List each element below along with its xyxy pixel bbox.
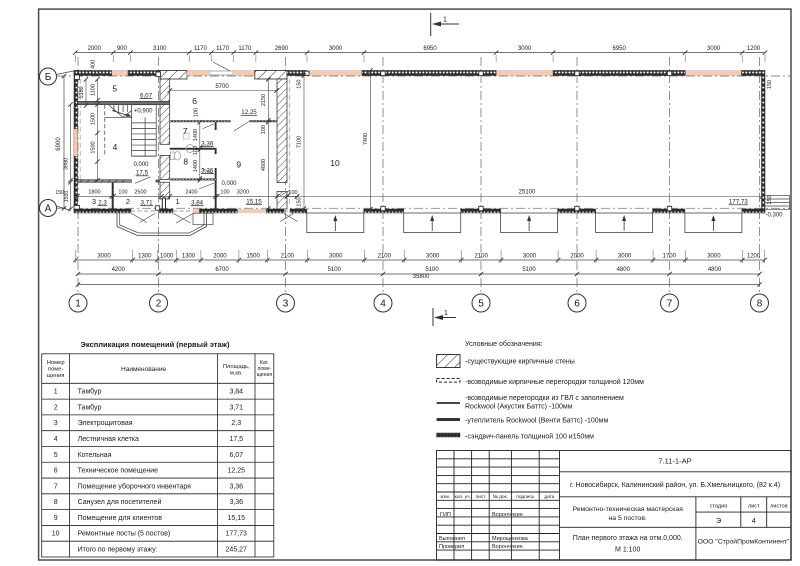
svg-text:Ремонтные посты (5 постов): Ремонтные посты (5 постов) xyxy=(78,531,171,538)
svg-text:1400: 1400 xyxy=(193,129,199,141)
svg-text:-утеплитель Rockwool (Венти Ба: -утеплитель Rockwool (Венти Баттс) -100м… xyxy=(465,418,608,425)
svg-text:Условные обозначения:: Условные обозначения: xyxy=(465,340,543,348)
svg-text:6: 6 xyxy=(54,468,58,475)
svg-text:2150: 2150 xyxy=(261,94,267,106)
svg-text:3000: 3000 xyxy=(523,253,537,259)
svg-text:3000: 3000 xyxy=(707,46,721,52)
svg-text:1400: 1400 xyxy=(193,160,199,172)
svg-text:Итого по первому этажу:: Итого по первому этажу: xyxy=(78,547,158,554)
svg-text:100: 100 xyxy=(220,190,229,196)
svg-text:8: 8 xyxy=(54,499,58,506)
svg-text:2000: 2000 xyxy=(570,253,584,259)
svg-text:5100: 5100 xyxy=(328,267,342,273)
svg-text:2500: 2500 xyxy=(134,190,146,196)
svg-text:1500: 1500 xyxy=(91,141,97,153)
svg-text:Ворончихин: Ворончихин xyxy=(492,544,523,550)
svg-text:Б: Б xyxy=(45,72,52,83)
svg-text:1200: 1200 xyxy=(747,46,761,52)
svg-text:1500: 1500 xyxy=(91,113,97,125)
svg-text:5: 5 xyxy=(478,299,484,310)
svg-text:1500: 1500 xyxy=(64,191,70,203)
svg-text:150: 150 xyxy=(297,80,303,89)
svg-text:подпись: подпись xyxy=(516,495,535,500)
svg-text:6950: 6950 xyxy=(423,46,437,52)
svg-text:ГИП: ГИП xyxy=(440,512,451,518)
svg-text:3000: 3000 xyxy=(518,46,532,52)
svg-text:9: 9 xyxy=(54,515,58,522)
svg-text:2,3: 2,3 xyxy=(231,420,241,427)
svg-text:900: 900 xyxy=(117,46,128,52)
svg-text:1200: 1200 xyxy=(747,253,761,259)
svg-text:7100: 7100 xyxy=(297,136,303,148)
svg-text:2100: 2100 xyxy=(281,253,295,259)
svg-text:Ворончихин: Ворончихин xyxy=(492,512,523,518)
svg-text:Котельная: Котельная xyxy=(78,452,112,459)
svg-text:7400: 7400 xyxy=(363,133,369,145)
svg-text:2: 2 xyxy=(126,197,130,206)
svg-text:7.11-1-АР: 7.11-1-АР xyxy=(658,457,691,466)
svg-text:5100: 5100 xyxy=(522,267,536,273)
svg-text:4: 4 xyxy=(113,142,118,152)
svg-text:7: 7 xyxy=(667,299,673,310)
svg-text:35800: 35800 xyxy=(413,274,430,280)
svg-text:3: 3 xyxy=(92,197,96,206)
svg-text:3200: 3200 xyxy=(237,190,249,196)
svg-text:2100: 2100 xyxy=(474,253,488,259)
svg-text:2: 2 xyxy=(54,404,58,411)
svg-text:Помещение уборочного инвентаря: Помещение уборочного инвентаря xyxy=(78,482,192,490)
svg-text:кол. уч.: кол. уч. xyxy=(455,495,471,500)
svg-text:-возводимые перегородки из ГВЛ: -возводимые перегородки из ГВЛ с заполне… xyxy=(465,395,624,402)
svg-text:100: 100 xyxy=(288,190,297,196)
svg-text:1170: 1170 xyxy=(194,46,208,52)
svg-text:1170: 1170 xyxy=(238,46,252,52)
svg-text:-0,300: -0,300 xyxy=(765,213,783,219)
svg-text:150: 150 xyxy=(767,80,773,89)
svg-text:3,36: 3,36 xyxy=(229,483,243,490)
svg-text:Наименование: Наименование xyxy=(121,366,166,373)
svg-text:3000: 3000 xyxy=(329,253,343,259)
svg-text:150: 150 xyxy=(55,190,64,196)
svg-text:г. Новосибирск, Калининский ра: г. Новосибирск, Калининский район, ул. Б… xyxy=(570,481,780,489)
svg-text:Тамбур: Тамбур xyxy=(78,388,102,396)
svg-text:150: 150 xyxy=(297,197,303,206)
svg-text:3000: 3000 xyxy=(707,253,721,259)
svg-text:1700: 1700 xyxy=(663,253,677,259)
svg-text:17,5: 17,5 xyxy=(229,436,243,443)
svg-text:лист: лист xyxy=(475,495,486,500)
svg-text:Электрощитовая: Электрощитовая xyxy=(78,420,133,427)
svg-text:-возводимые кирпичные перегоро: -возводимые кирпичные перегородки толщин… xyxy=(465,378,644,386)
svg-text:щения: щения xyxy=(47,373,65,379)
svg-text:поме-: поме- xyxy=(48,367,64,373)
svg-text:3: 3 xyxy=(283,299,289,310)
svg-text:Э: Э xyxy=(716,516,722,525)
svg-text:Мирощенкова: Мирощенкова xyxy=(492,536,529,542)
svg-text:4: 4 xyxy=(54,436,58,443)
svg-text:3,84: 3,84 xyxy=(229,389,243,396)
svg-text:лист: лист xyxy=(748,504,760,510)
svg-text:100: 100 xyxy=(261,125,267,134)
svg-text:6: 6 xyxy=(574,299,580,310)
svg-text:листов: листов xyxy=(770,504,788,510)
svg-text:3000: 3000 xyxy=(426,253,440,259)
svg-text:3: 3 xyxy=(54,420,58,427)
svg-text:дата: дата xyxy=(544,495,555,500)
svg-text:1170: 1170 xyxy=(216,46,230,52)
svg-text:щения: щения xyxy=(257,372,273,378)
svg-text:+0,900: +0,900 xyxy=(134,108,153,114)
svg-text:1: 1 xyxy=(176,197,180,206)
svg-text:9: 9 xyxy=(236,160,241,170)
svg-text:м.кв.: м.кв. xyxy=(230,371,243,377)
svg-text:стадия: стадия xyxy=(710,504,728,510)
svg-text:3100: 3100 xyxy=(153,46,167,52)
svg-text:Помещение для клиентов: Помещение для клиентов xyxy=(78,515,163,522)
svg-text:4: 4 xyxy=(380,299,386,310)
svg-text:3,36: 3,36 xyxy=(229,499,243,506)
svg-text:6: 6 xyxy=(192,96,197,106)
svg-text:100: 100 xyxy=(118,190,127,196)
svg-text:245,27: 245,27 xyxy=(226,547,248,554)
svg-text:150: 150 xyxy=(767,195,773,204)
svg-text:1800: 1800 xyxy=(88,190,100,196)
svg-text:100: 100 xyxy=(194,108,200,117)
svg-text:4800: 4800 xyxy=(708,267,722,273)
svg-text:4800: 4800 xyxy=(617,267,631,273)
svg-text:-сэндвич-панель толщиной 100 и: -сэндвич-панель толщиной 100 и150мм xyxy=(465,433,594,441)
svg-text:Техническое помещение: Техническое помещение xyxy=(78,468,159,475)
svg-text:15,15: 15,15 xyxy=(227,515,245,522)
svg-text:400: 400 xyxy=(91,60,97,69)
svg-text:1: 1 xyxy=(75,299,81,310)
svg-text:Тамбур: Тамбур xyxy=(78,403,102,411)
svg-text:177,73: 177,73 xyxy=(226,531,248,538)
svg-text:4600: 4600 xyxy=(261,159,267,171)
svg-text:0,000: 0,000 xyxy=(133,162,149,168)
svg-text:Экспликация помещений (первый: Экспликация помещений (первый этаж) xyxy=(81,340,230,349)
svg-text:2400: 2400 xyxy=(185,190,197,196)
svg-text:1100: 1100 xyxy=(91,84,97,96)
svg-text:Выполнил: Выполнил xyxy=(439,536,465,542)
svg-text:План первого этажа на отм.0,00: План первого этажа на отм.0,000. xyxy=(573,535,683,542)
svg-text:1: 1 xyxy=(443,17,447,24)
svg-text:3000: 3000 xyxy=(618,253,632,259)
svg-text:2000: 2000 xyxy=(213,253,227,259)
svg-text:6700: 6700 xyxy=(215,267,229,273)
svg-text:6950: 6950 xyxy=(612,46,626,52)
svg-text:4: 4 xyxy=(752,516,756,525)
svg-text:2100: 2100 xyxy=(378,253,392,259)
svg-text:1500: 1500 xyxy=(246,253,260,259)
svg-text:ООО "СтройПромКонтинент": ООО "СтройПромКонтинент" xyxy=(698,538,790,546)
svg-text:2000: 2000 xyxy=(88,46,102,52)
svg-text:на 5 постов.: на 5 постов. xyxy=(609,515,647,522)
svg-text:1300: 1300 xyxy=(182,253,196,259)
svg-text:100: 100 xyxy=(193,146,199,155)
svg-text:Rockwool (Акустик Баттс) -100м: Rockwool (Акустик Баттс) -100мм xyxy=(465,404,573,411)
svg-text:Номер: Номер xyxy=(47,360,65,366)
svg-text:1380: 1380 xyxy=(79,86,85,98)
svg-text:2690: 2690 xyxy=(275,46,289,52)
svg-text:10: 10 xyxy=(52,531,60,538)
svg-text:7: 7 xyxy=(183,126,188,136)
svg-text:8: 8 xyxy=(183,156,188,166)
svg-text:1000: 1000 xyxy=(160,253,174,259)
svg-text:25100: 25100 xyxy=(519,189,536,195)
svg-text:2: 2 xyxy=(156,299,162,310)
svg-text:7: 7 xyxy=(54,483,58,490)
svg-text:6900: 6900 xyxy=(56,137,62,151)
svg-text:изм.: изм. xyxy=(440,495,450,500)
svg-text:3000: 3000 xyxy=(97,253,111,259)
svg-text:5700: 5700 xyxy=(215,84,229,90)
svg-text:Лестничная клетка: Лестничная клетка xyxy=(78,436,139,443)
svg-text:0,000: 0,000 xyxy=(221,181,237,187)
svg-text:10: 10 xyxy=(330,158,340,168)
svg-text:4200: 4200 xyxy=(112,267,126,273)
svg-text:1: 1 xyxy=(54,389,58,396)
svg-text:-существующие кирпичные стены: -существующие кирпичные стены xyxy=(465,359,575,366)
svg-text:№ док.: № док. xyxy=(493,494,508,500)
svg-text:1: 1 xyxy=(444,310,448,317)
svg-text:5: 5 xyxy=(54,452,58,459)
svg-text:5: 5 xyxy=(112,83,117,93)
svg-text:3980: 3980 xyxy=(64,158,70,170)
svg-text:Ремонтно-техническая мастерска: Ремонтно-техническая мастерская xyxy=(573,506,684,513)
svg-text:1300: 1300 xyxy=(138,253,152,259)
svg-text:3000: 3000 xyxy=(329,46,343,52)
svg-text:12,25: 12,25 xyxy=(241,109,257,116)
svg-text:М 1:100: М 1:100 xyxy=(615,547,640,554)
svg-text:Санузел для посетителей: Санузел для посетителей xyxy=(78,498,162,506)
svg-text:8: 8 xyxy=(757,299,763,310)
svg-text:12,25: 12,25 xyxy=(227,468,245,475)
svg-text:Проверил: Проверил xyxy=(439,544,464,550)
svg-text:3,71: 3,71 xyxy=(229,404,243,411)
svg-text:А: А xyxy=(45,204,52,215)
svg-text:Площадь,: Площадь, xyxy=(223,364,250,370)
svg-text:5100: 5100 xyxy=(425,267,439,273)
svg-text:6,07: 6,07 xyxy=(229,452,243,459)
